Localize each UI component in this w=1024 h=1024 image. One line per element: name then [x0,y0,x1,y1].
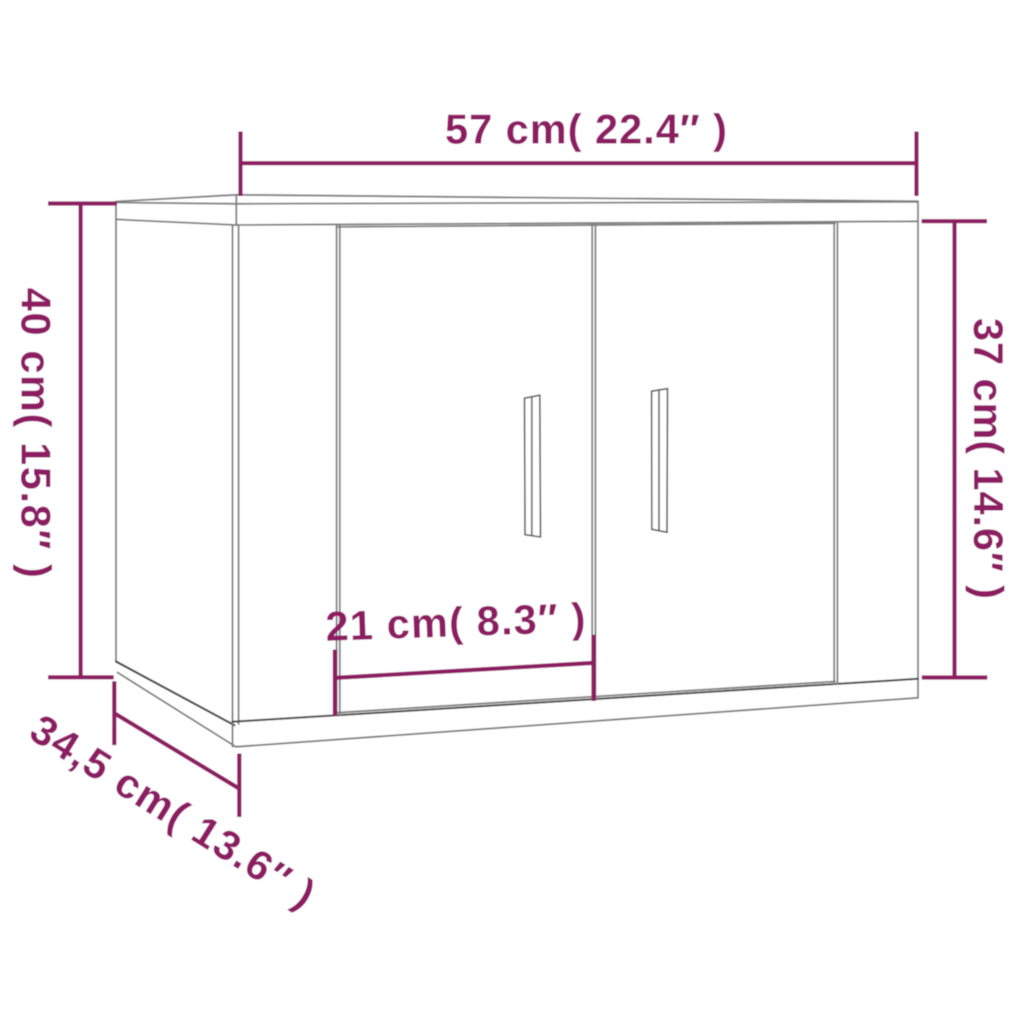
svg-text:21 cm( 8.3″ ): 21 cm( 8.3″ ) [325,594,586,650]
svg-text:57 cm( 22.4″ ): 57 cm( 22.4″ ) [445,106,727,153]
svg-text:37 cm( 14.6″ ): 37 cm( 14.6″ ) [965,318,1012,599]
svg-text:40 cm( 15.8″ ): 40 cm( 15.8″ ) [13,288,60,578]
